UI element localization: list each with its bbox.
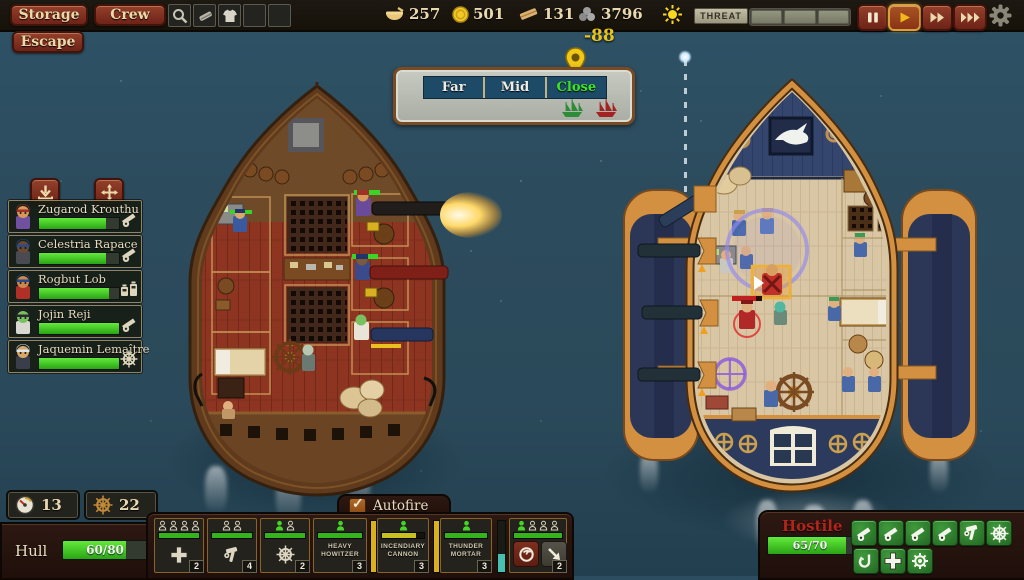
cannon-icon bbox=[909, 524, 927, 542]
station-slot-helm[interactable]: 2 bbox=[260, 518, 310, 573]
cannon-icon bbox=[855, 524, 873, 542]
crew-assigned-icon bbox=[336, 520, 345, 531]
reload-gauge bbox=[370, 520, 377, 573]
shirt-icon bbox=[222, 8, 238, 24]
resource-gold: 501 bbox=[452, 5, 504, 23]
sun-icon bbox=[662, 4, 683, 25]
reload-gauge bbox=[433, 520, 440, 573]
crew-row[interactable]: Celestria Rapace bbox=[8, 235, 142, 268]
dark-crate bbox=[218, 378, 244, 398]
defend-button[interactable] bbox=[513, 541, 539, 567]
avatar bbox=[12, 238, 34, 265]
quick-slot-spyglass[interactable] bbox=[168, 4, 191, 27]
attic-window bbox=[293, 123, 319, 147]
avatar bbox=[12, 273, 34, 300]
player-ship-marker bbox=[560, 98, 584, 118]
hostile-health-bar: 65/70 bbox=[767, 536, 853, 555]
engine-icon bbox=[911, 552, 929, 570]
crew-assigned-icon bbox=[399, 520, 408, 531]
enemy-ship-marker bbox=[594, 98, 618, 118]
pause-button[interactable] bbox=[857, 4, 888, 31]
station-slot-repair[interactable]: 4 bbox=[207, 518, 257, 573]
crew-sprite-workshop[interactable] bbox=[233, 209, 247, 232]
range-panel: Far Mid Close bbox=[393, 67, 635, 125]
slot-count-badge: 3 bbox=[414, 560, 429, 573]
avatar bbox=[12, 308, 34, 335]
slot-count-badge: 4 bbox=[242, 560, 257, 573]
slot-count-badge: 2 bbox=[552, 560, 567, 573]
crew-health-bar bbox=[38, 287, 120, 300]
pot bbox=[849, 335, 867, 353]
hostile-health-value: 65/70 bbox=[768, 537, 852, 554]
hull-label: Hull bbox=[15, 542, 47, 560]
cargo-grate bbox=[848, 206, 873, 231]
range-option-far[interactable]: Far bbox=[424, 77, 485, 98]
crew-health-bar bbox=[38, 322, 120, 335]
crew-health-bar bbox=[38, 217, 120, 230]
crew-empty-icon bbox=[158, 520, 167, 531]
fast-forward-button[interactable] bbox=[921, 4, 953, 31]
boarding-slot[interactable]: 2 bbox=[509, 518, 567, 573]
bed bbox=[214, 348, 266, 376]
range-selector: Far Mid Close bbox=[423, 76, 607, 99]
crew-empty-icon bbox=[286, 520, 295, 531]
crew-empty-icon bbox=[169, 520, 178, 531]
quick-slot-empty[interactable] bbox=[243, 4, 266, 27]
play-button[interactable] bbox=[888, 4, 921, 31]
target-cannon-2-button[interactable] bbox=[878, 520, 904, 546]
crew-count-chip: 22 bbox=[86, 492, 156, 518]
target-cannon-3-button[interactable] bbox=[905, 520, 931, 546]
player-ship[interactable] bbox=[172, 82, 472, 507]
enemy-pontoon-right bbox=[902, 190, 976, 460]
crew-sprite-helmsman[interactable] bbox=[302, 345, 315, 372]
quick-slot-whetstone[interactable] bbox=[193, 4, 216, 27]
barrel bbox=[218, 278, 234, 294]
enemy-ship[interactable] bbox=[602, 78, 997, 518]
crew-health-bar bbox=[38, 357, 120, 370]
green-ship-icon bbox=[560, 98, 584, 118]
ammo-crate bbox=[365, 288, 377, 297]
target-repair-button[interactable] bbox=[959, 520, 985, 546]
weapon-slot-heavy-howitzer[interactable]: HEAVYHOWITZER 3 bbox=[313, 518, 367, 573]
gold-count: 501 bbox=[473, 5, 504, 23]
hull-health-bar: 60/80 bbox=[62, 540, 148, 560]
crew-button[interactable]: Crew bbox=[94, 4, 166, 26]
speed-gauge-chip: 13 bbox=[8, 492, 78, 518]
hostile-panel: Hostile 65/70 bbox=[758, 510, 1024, 580]
target-cannon-4-button[interactable] bbox=[932, 520, 958, 546]
station-slot-medic[interactable]: 2 bbox=[154, 518, 204, 573]
range-option-close[interactable]: Close bbox=[547, 77, 606, 98]
crew-empty-icon bbox=[180, 520, 189, 531]
crew-empty-icon bbox=[550, 520, 559, 531]
cannon-icon bbox=[120, 210, 138, 228]
bowl-icon bbox=[384, 6, 405, 23]
storage-button[interactable]: Storage bbox=[10, 4, 88, 26]
threat-segment bbox=[818, 10, 849, 24]
resource-cannonballs: 3796 bbox=[577, 5, 643, 23]
crew-count-value: 22 bbox=[119, 496, 140, 514]
play-icon bbox=[898, 11, 912, 24]
resource-food: 257 bbox=[384, 5, 440, 23]
threat-segment bbox=[751, 10, 782, 24]
crew-row[interactable]: Jaquemin Lemaître bbox=[8, 340, 142, 373]
red-ship-icon bbox=[594, 98, 618, 118]
crate bbox=[216, 300, 230, 310]
crew-assigned-icon bbox=[517, 520, 526, 531]
move-icon bbox=[101, 184, 118, 201]
cannon-icon bbox=[882, 524, 900, 542]
cargo-grate bbox=[287, 197, 347, 253]
coin-icon bbox=[452, 6, 469, 23]
projectile-glow bbox=[678, 50, 692, 64]
muzzle-flash bbox=[440, 192, 502, 238]
target-medic-button[interactable] bbox=[880, 548, 906, 574]
hull-panel: Hull 60/80 bbox=[0, 522, 154, 580]
hook-icon bbox=[858, 553, 875, 570]
crew-name: Jojin Reji bbox=[38, 307, 91, 321]
crew-empty-icon bbox=[191, 520, 200, 531]
cannonball-count: 3796 bbox=[601, 5, 643, 23]
resource-planks: 131 bbox=[518, 5, 574, 23]
threat-label: THREAT bbox=[694, 8, 748, 24]
crew-empty-icon bbox=[539, 520, 548, 531]
fast-forward-icon bbox=[929, 11, 946, 24]
cargo-grate bbox=[287, 287, 347, 343]
slot-count-badge: 3 bbox=[477, 560, 492, 573]
crew-health-bar bbox=[38, 252, 120, 265]
table bbox=[706, 396, 728, 409]
range-option-mid[interactable]: Mid bbox=[485, 77, 546, 98]
target-cannon-1-button[interactable] bbox=[851, 520, 877, 546]
medic-plus-icon bbox=[883, 551, 903, 571]
quick-slot-empty[interactable] bbox=[268, 4, 291, 27]
target-helm-button[interactable] bbox=[986, 520, 1012, 546]
boarding-gauge bbox=[497, 520, 506, 573]
crew-row[interactable]: Rogbut Lob bbox=[8, 270, 142, 303]
whetstone-icon bbox=[197, 8, 213, 24]
cannon-icon bbox=[120, 245, 138, 263]
crew-empty-icon bbox=[222, 520, 231, 531]
cannon-icon bbox=[936, 524, 954, 542]
cannonballs-icon bbox=[577, 5, 597, 23]
crew-assigned-icon bbox=[462, 520, 471, 531]
crew-empty-icon bbox=[528, 520, 537, 531]
table bbox=[732, 408, 756, 421]
pause-icon bbox=[866, 11, 880, 24]
enemy-helm-wheel[interactable] bbox=[774, 372, 814, 412]
settings-gear-button[interactable] bbox=[988, 3, 1013, 28]
weapon-slot-incendiary-cannon[interactable]: INCENDIARYCANNON 3 bbox=[377, 518, 429, 573]
gear-icon bbox=[988, 3, 1013, 28]
crew-assigned-icon bbox=[275, 520, 284, 531]
machines-icon bbox=[120, 280, 138, 298]
avatar bbox=[12, 343, 34, 370]
top-bar: Storage Crew 257 501 131 3796 THREAT bbox=[0, 0, 1024, 32]
slot-count-badge: 2 bbox=[295, 560, 310, 573]
ammo-crate bbox=[367, 222, 379, 231]
hostile-title: Hostile bbox=[782, 517, 843, 535]
planks-count: 131 bbox=[543, 5, 574, 23]
stern-window bbox=[770, 426, 816, 466]
weapons-bar: 2 4 2 HEAVYHOWITZER 3 INCENDIARYCANNON 3… bbox=[146, 512, 574, 580]
enemy-crew-sprite[interactable] bbox=[774, 302, 787, 326]
cannon-platform bbox=[694, 186, 716, 212]
sun-icon-wrap bbox=[662, 4, 683, 25]
threat-segment bbox=[784, 10, 815, 24]
enemy-crew-sprite[interactable] bbox=[764, 381, 778, 408]
crew-row[interactable]: Jojin Reji bbox=[8, 305, 142, 338]
gauge-icon bbox=[15, 495, 35, 515]
cannon-icon bbox=[120, 315, 138, 333]
plank-icon bbox=[518, 6, 539, 22]
wheel-icon bbox=[120, 350, 138, 368]
defend-swirl-icon bbox=[518, 546, 535, 563]
crew-name: Rogbut Lob bbox=[38, 272, 106, 286]
crew-row[interactable]: Zugarod Krouthu bbox=[8, 200, 142, 233]
slot-count-badge: 3 bbox=[352, 560, 367, 573]
crew-empty-icon bbox=[233, 520, 242, 531]
quick-slot-shirt[interactable] bbox=[218, 4, 241, 27]
download-icon bbox=[37, 184, 54, 200]
target-engine-button[interactable] bbox=[907, 548, 933, 574]
fastest-forward-icon bbox=[960, 11, 981, 24]
repair-icon bbox=[963, 524, 981, 542]
pot bbox=[865, 351, 883, 369]
brown-wheel-icon bbox=[93, 495, 113, 515]
avatar bbox=[12, 203, 34, 230]
reload-bar bbox=[371, 344, 401, 348]
food-count: 257 bbox=[409, 5, 440, 23]
slot-count-badge: 2 bbox=[189, 560, 204, 573]
selected-enemy-boss[interactable] bbox=[752, 264, 790, 298]
distance-value: -88 bbox=[584, 26, 615, 46]
helm-wheel-icon bbox=[990, 524, 1009, 543]
threat-meter bbox=[749, 8, 851, 26]
weapon-slot-thunder-mortar[interactable]: THUNDERMORTAR 3 bbox=[440, 518, 492, 573]
speed-value: 13 bbox=[41, 496, 62, 514]
escape-button[interactable]: Escape bbox=[12, 31, 84, 53]
spyglass-icon bbox=[172, 8, 188, 24]
fastest-forward-button[interactable] bbox=[953, 4, 987, 31]
hull-value: 60/80 bbox=[63, 541, 147, 559]
target-hook-button[interactable] bbox=[853, 548, 879, 574]
